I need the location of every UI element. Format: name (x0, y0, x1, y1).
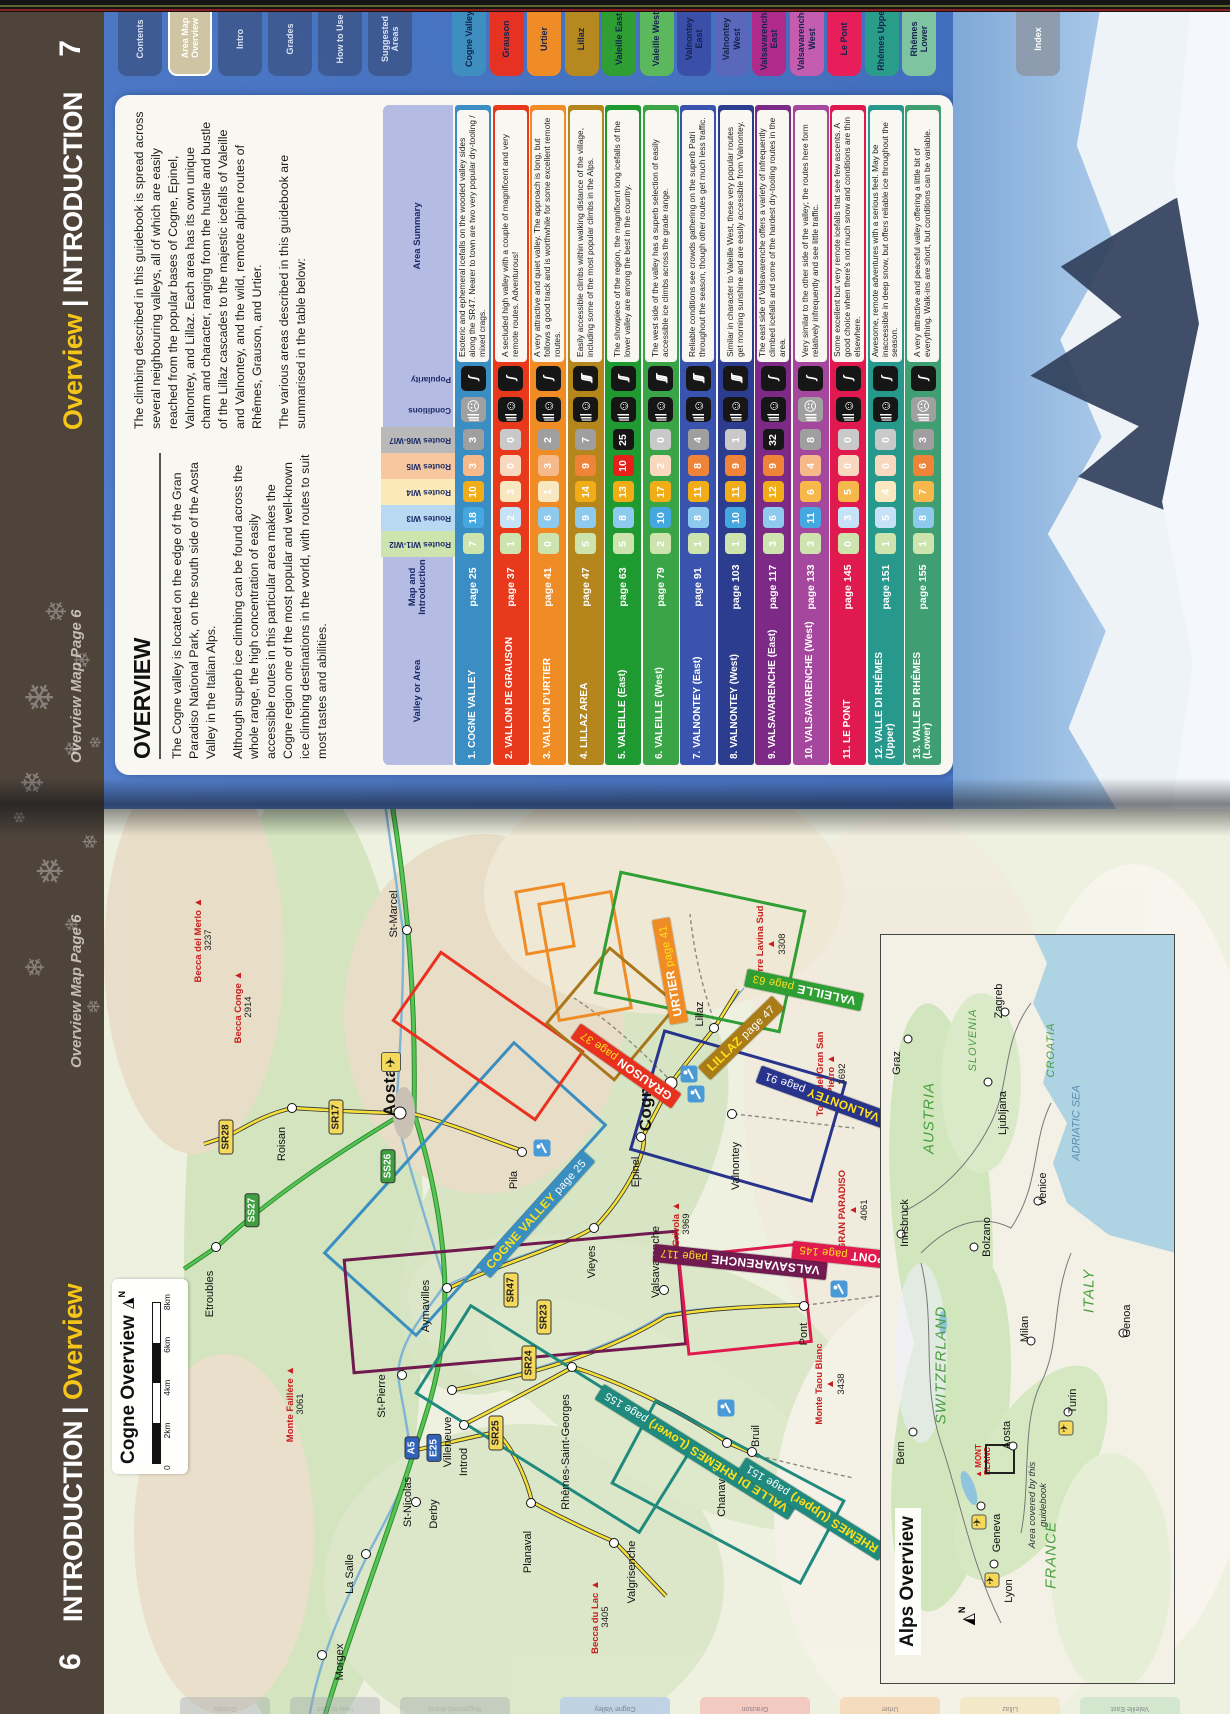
table-header-3: Routes WI3 (381, 505, 455, 531)
town-dot-la-salle (361, 1549, 371, 1559)
routes-count-wi5: 9 (725, 456, 746, 477)
routes-count-wi12: 1 (725, 534, 746, 555)
ice-axe-icon: ʃʃʃ (579, 376, 593, 382)
road-badge-sr23: SR23 (537, 1299, 552, 1334)
scale-tick-label: 2km (162, 1422, 172, 1438)
city-dot-graz (904, 1035, 913, 1044)
area-summary: Easily accessible climbs within walking … (570, 110, 602, 362)
town-dot-etroubles (211, 1242, 221, 1252)
popularity-icon: ʃʃʃ (573, 367, 598, 392)
icefall-icon (542, 414, 554, 421)
table-header-label: Map and Introduction (407, 559, 428, 614)
icefall-icon (655, 414, 667, 421)
city-label: Zagreb (993, 984, 1005, 1019)
routes-count-wi67: 4 (688, 430, 709, 451)
tab-area-valeille-east[interactable]: Valeille East (602, 4, 636, 76)
routes-count-wi5: 3 (463, 456, 484, 477)
town-dot-pont (799, 1301, 809, 1311)
ice-axe-icon: ʃ (466, 378, 480, 380)
table-row: 1. COGNE VALLEYpage 257181033☹ʃEsoteric … (455, 105, 491, 765)
snowflake-icon: ❄ (86, 736, 104, 749)
town-label: St-Pierre (376, 1374, 388, 1417)
town-dot-epinel (636, 1132, 646, 1142)
tab-contents[interactable]: Contents (118, 4, 162, 76)
table-row: 11. LE PONTpage 14503500☺ʃSome excellent… (830, 105, 866, 765)
tab-area-valsavarenche-west[interactable]: Valsavarenche West (790, 4, 824, 76)
happy-face-icon: ☺ (617, 399, 630, 412)
town-dot-rh-mes-saint-georges (567, 1362, 577, 1372)
city-label: Aosta (1001, 1421, 1013, 1449)
town-label: Rhêmes-Saint-Georges (560, 1394, 572, 1510)
area-page-ref: page 117 (767, 557, 779, 617)
edge-tab-urtier[interactable]: Urtier (840, 1697, 940, 1714)
north-arrow-icon: ◮N (118, 1291, 136, 1309)
conditions-icon: ☺ (648, 398, 673, 423)
page7-header-topic: Overview (58, 314, 88, 430)
area-summary: The east side of Valsavarenche offers a … (757, 110, 789, 362)
routes-count-wi67: 8 (800, 430, 821, 451)
routes-count-wi67: 0 (875, 430, 896, 451)
tab-area-rhêmes-upper[interactable]: Rhêmes Upper (865, 4, 899, 76)
page6-header-band: 6 INTRODUCTION | Overview Overview Map P… (0, 809, 104, 1714)
conditions-icon: ☺ (723, 398, 748, 423)
page7-header-title: Overview | INTRODUCTION (58, 92, 89, 430)
routes-count-wi3: 9 (575, 508, 596, 529)
map-title: Cogne Overview (118, 1315, 139, 1464)
happy-face-icon: ☺ (692, 399, 705, 412)
ice-axe-icon: ʃʃ (616, 377, 630, 381)
peak-triangle-icon: ▲ (825, 1379, 836, 1389)
tab-area-valeille-west[interactable]: Valeille West (640, 4, 674, 76)
routes-count-wi4: 11 (725, 482, 746, 503)
tab-area-valnontey-east[interactable]: Valnontey East (677, 4, 711, 76)
area-page-ref: page 63 (617, 557, 629, 617)
ice-axe-icon: ʃ (879, 378, 893, 380)
town-label: Derby (428, 1499, 440, 1528)
page-stack-edge (0, 0, 1230, 12)
routes-count-wi12: 3 (800, 534, 821, 555)
overview-heading: OVERVIEW (129, 453, 161, 759)
table-header-5: Routes WI5 (381, 453, 455, 479)
town-dot-chanavey (722, 1438, 732, 1448)
routes-count-wi5: 2 (650, 456, 671, 477)
tab-area-valnontey-west[interactable]: Valnontey West (715, 4, 749, 76)
town-dot-lillaz (709, 1023, 719, 1033)
routes-count-wi5: 3 (538, 456, 559, 477)
table-header-label: Routes WI1-WI2 (385, 540, 451, 549)
city-dot-bern (909, 1428, 918, 1437)
area-name: 1. COGNE VALLEY (468, 617, 479, 765)
table-header-4: Routes WI4 (381, 479, 455, 505)
tab-suggested-areas[interactable]: Suggested Areas (368, 4, 412, 76)
table-row: 6. VALEILLE (West)page 792101720☺ʃʃʃThe … (643, 105, 679, 765)
tab-how-to-use[interactable]: How to Use (318, 4, 362, 76)
area-page-ref: page 133 (805, 557, 817, 617)
table-header-6: Routes WI6-WI7 (381, 427, 455, 453)
town-label: Villeneuve (442, 1417, 454, 1468)
town-dot-derby (411, 1497, 421, 1507)
page-edge-line (0, 5, 1230, 7)
town-label: Epinel (630, 1157, 642, 1188)
area-page-ref: page 47 (580, 557, 592, 617)
road-badge-ss26: SS26 (381, 1149, 396, 1183)
edge-tab-label: Cogne Valley (594, 1705, 635, 1712)
routes-count-wi4: 14 (575, 482, 596, 503)
table-row: 7. VALNONTEY (East)page 91181184☺ʃʃʃReli… (680, 105, 716, 765)
area-name: 11. LE PONT (843, 617, 854, 765)
icefall-icon (692, 414, 704, 421)
table-header-8: Popularity (383, 365, 453, 393)
tab-area-urtier[interactable]: Urtier (527, 4, 561, 76)
snowflake-icon: ❄ (10, 811, 30, 824)
routes-count-wi3: 8 (613, 508, 634, 529)
book-spread: 6 INTRODUCTION | Overview Overview Map P… (0, 0, 1230, 1714)
table-header-0: Valley or Area (411, 617, 425, 765)
edge-tab-label: How to Use (317, 1705, 353, 1712)
table-header-row: Valley or AreaMap and IntroductionRoutes… (383, 105, 453, 765)
routes-count-wi3: 8 (913, 508, 934, 529)
routes-count-wi12: 7 (463, 534, 484, 555)
edge-tab-label: Grades (214, 1705, 237, 1712)
area-name: 9. VALSAVARENCHE (East) (768, 617, 779, 765)
snowflake-icon: ❄ (84, 999, 104, 1014)
peak-triangle-icon: ▲ (671, 1201, 682, 1211)
happy-face-icon: ☺ (579, 399, 592, 412)
routes-count-wi3: 18 (463, 508, 484, 529)
routes-count-wi4: 17 (650, 482, 671, 503)
conditions-icon: ☺ (761, 398, 786, 423)
snowflake-icon: ❄ (78, 833, 103, 850)
city-dot-ljubljana (984, 1078, 993, 1087)
town-label: Planaval (522, 1531, 534, 1573)
area-page-ref: page 91 (692, 557, 704, 617)
icefall-icon (917, 414, 929, 421)
area-summary: Awesome, remote adventures with a seriou… (870, 110, 902, 362)
ice-axe-icon: ʃʃʃ (691, 376, 705, 382)
tab-area-rhêmes-lower[interactable]: Rhêmes Lower (902, 4, 936, 76)
popularity-icon: ʃ (836, 367, 861, 392)
town-label: Pila (508, 1171, 520, 1189)
ski-icon (831, 1281, 848, 1298)
icefall-icon (730, 414, 742, 421)
table-header-7: Conditions (383, 393, 453, 427)
airport-icon: ✈ (972, 1515, 987, 1530)
page7-watermark: Overview Map Page 6 (68, 610, 85, 763)
popularity-icon: ʃ (498, 367, 523, 392)
town-dot-valgrisenche (609, 1538, 619, 1548)
page6-header-title: INTRODUCTION | Overview (58, 1284, 89, 1622)
conditions-icon: ☺ (836, 398, 861, 423)
sad-face-icon: ☹ (804, 399, 817, 413)
town-label: Valnontey (730, 1142, 742, 1190)
area-summary: Some excellent but very remote icefalls … (832, 110, 864, 362)
area-name: 8. VALNONTEY (West) (730, 617, 741, 765)
routes-count-wi4: 1 (538, 482, 559, 503)
city-label: Bern (895, 1441, 907, 1464)
table-row: 8. VALNONTEY (West)page 1031101191☺ʃʃʃSi… (718, 105, 754, 765)
road-badge-sr24: SR24 (522, 1345, 537, 1380)
peak-label-becca-du-lac: Becca du Lac ▲3405 (590, 1574, 612, 1660)
page7-header-section: INTRODUCTION (58, 92, 88, 293)
conditions-icon: ☺ (573, 398, 598, 423)
conditions-icon: ☺ (873, 398, 898, 423)
happy-face-icon: ☺ (654, 399, 667, 412)
airport-icon: ✈ (985, 1573, 1000, 1588)
routes-count-wi3: 6 (763, 508, 784, 529)
happy-face-icon: ☺ (767, 399, 780, 412)
ice-axe-icon: ʃʃʃ (729, 376, 743, 382)
popularity-icon: ʃ (911, 367, 936, 392)
ice-axe-icon: ʃ (916, 378, 930, 380)
page-edge-line (0, 9, 1230, 11)
popularity-icon: ʃ (761, 367, 786, 392)
edge-tab-label: Lillaz (1002, 1705, 1018, 1712)
ski-icon (718, 1400, 735, 1417)
routes-count-wi5: 0 (500, 456, 521, 477)
peak-triangle-icon: ▲ (848, 1205, 859, 1215)
ski-icon (681, 1066, 698, 1083)
road-badge-sr47: SR47 (504, 1272, 519, 1307)
alps-overview-inset: Alps Overview ◭N ADRIATIC SEA ▲ MONT BLA… (880, 934, 1175, 1684)
town-dot-planaval (526, 1498, 536, 1508)
country-label-france: FRANCE (1043, 1521, 1060, 1589)
town-label: Introd (458, 1448, 470, 1476)
conditions-icon: ☹ (461, 398, 486, 423)
conditions-icon: ☺ (536, 398, 561, 423)
tab-area-le-pont[interactable]: Le Pont (827, 4, 861, 76)
edge-tab-lillaz[interactable]: Lillaz (960, 1697, 1060, 1714)
inset-title: Alps Overview (895, 1508, 921, 1655)
edge-tab-grades[interactable]: Grades (180, 1697, 270, 1714)
country-label-switzerland: SWITZERLAND (933, 1306, 950, 1425)
happy-face-icon: ☺ (542, 399, 555, 412)
routes-count-wi3: 3 (838, 508, 859, 529)
scale-tick-label: 0 (162, 1465, 172, 1470)
tab-area-cogne-valley[interactable]: Cogne Valley (452, 4, 486, 76)
peak-triangle-icon: ▲ (285, 1366, 296, 1376)
happy-face-icon: ☺ (842, 399, 855, 412)
town-dot-roisan (287, 1103, 297, 1113)
city-label: Genoa (1121, 1304, 1133, 1337)
edge-tab-suggested-areas[interactable]: Suggested Areas (400, 1697, 510, 1714)
table-row: 4. LILLAZ AREApage 47591497☺ʃʃʃEasily ac… (568, 105, 604, 765)
city-label: Geneva (991, 1514, 1003, 1553)
routes-count-wi5: 10 (613, 456, 634, 477)
table-header-label: Conditions (385, 406, 451, 415)
country-label-italy: ITALY (1081, 1269, 1098, 1313)
ice-axe-icon: ʃ (541, 378, 555, 380)
ice-axe-icon: ʃ (804, 378, 818, 380)
inset-sea-label: ADRIATIC SEA (1070, 1085, 1083, 1161)
area-summary: A very attractive and quiet valley. The … (532, 110, 564, 362)
peak-triangle-icon: ▲ (193, 898, 204, 908)
area-page-ref: page 151 (880, 557, 892, 617)
peak-triangle-icon: ▲ (766, 939, 777, 949)
town-label: Valgrisenche (626, 1541, 638, 1604)
peak-triangle-icon: ▲ (826, 1054, 837, 1064)
table-header-label: Popularity (385, 375, 451, 384)
popularity-icon: ʃ (798, 367, 823, 392)
map-scale-bar (152, 1302, 161, 1464)
tab-area-map-overview[interactable]: Area Map Overview (168, 4, 212, 76)
routes-count-wi67: 3 (463, 430, 484, 451)
cogne-overview-map: St-MarcelAostaRoisanEtroublesPilaAymavil… (104, 809, 1230, 1714)
edge-tab-how-to-use[interactable]: How to Use (290, 1697, 380, 1714)
town-dot-vieyes (589, 1223, 599, 1233)
city-label: Innsbruck (899, 1199, 911, 1247)
routes-count-wi12: 1 (688, 534, 709, 555)
tab-intro[interactable]: Intro (218, 4, 262, 76)
happy-face-icon: ☺ (729, 399, 742, 412)
page7-header-band: Overview Map Page 6 Overview | INTRODUCT… (0, 0, 104, 809)
peak-label-monte-taou-blanc: Monte Taou Blanc ▲3438 (815, 1341, 847, 1427)
icefall-icon (805, 414, 817, 421)
road-badge-e25: E25 (427, 1434, 442, 1462)
edge-tab-valeille-east[interactable]: Valeille East (1080, 1697, 1180, 1714)
tab-area-grauson[interactable]: Grauson (490, 4, 524, 76)
popularity-icon: ʃʃʃ (648, 367, 673, 392)
area-page-ref: page 37 (505, 557, 517, 617)
table-row: 10. VALSAVARENCHE (West)page 133311648☹ʃ… (793, 105, 829, 765)
snowflake-icon: ❄ (16, 770, 51, 795)
peak-triangle-icon: ▲ (233, 971, 244, 981)
page6-header-section: INTRODUCTION (58, 1421, 88, 1622)
routes-count-wi67: 32 (763, 430, 784, 451)
icefall-icon (580, 414, 592, 421)
scale-tick-label: 8km (162, 1294, 172, 1310)
tab-grades[interactable]: Grades (268, 4, 312, 76)
overview-paragraph-1: The Cogne valley is located on the edge … (169, 453, 220, 759)
routes-count-wi4: 3 (500, 482, 521, 503)
town-dot-bruil (747, 1447, 757, 1457)
road-badge-sr28: SR28 (219, 1119, 234, 1154)
town-dot-pila (517, 1147, 527, 1157)
town-dot-aymavilles (442, 1283, 452, 1293)
city-label: Graz (891, 1051, 903, 1075)
town-label: Morgex (334, 1644, 346, 1681)
icefall-icon (505, 414, 517, 421)
table-row: 2. VALLON DE GRAUSONpage 3712300☺ʃA secl… (493, 105, 529, 765)
map-scale-labels: 02km4km6km8km (162, 1294, 172, 1470)
area-summary: Similar in character to Valeille West, t… (720, 110, 752, 362)
inset-north-arrow-icon: ◭N (958, 1607, 978, 1626)
map-title-box: Cogne Overview ◮N 02km4km6km8km (112, 1279, 188, 1474)
table-header-label: Routes WI4 (385, 488, 451, 497)
tab-index[interactable]: Index (1016, 4, 1060, 76)
area-name: 6. VALEILLE (West) (655, 617, 666, 765)
routes-count-wi3: 11 (800, 508, 821, 529)
area-name: 3. VALLON D'URTIER (543, 617, 554, 765)
routes-count-wi3: 10 (650, 508, 671, 529)
sad-face-icon: ☹ (917, 399, 930, 413)
road-badge-sr17: SR17 (329, 1099, 344, 1134)
area-summary: A secluded high valley with a couple of … (495, 110, 527, 362)
town-label: Aymavilles (420, 1280, 432, 1332)
snowflake-icon: ❄ (30, 856, 72, 886)
road-badge-a5: A5 (405, 1437, 420, 1460)
routes-count-wi12: 1 (500, 534, 521, 555)
city-label: Turin (1067, 1389, 1079, 1414)
routes-count-wi4: 10 (463, 482, 484, 503)
ice-axe-icon: ʃ (766, 378, 780, 380)
ski-icon (688, 1086, 705, 1103)
town-label: Etroubles (204, 1271, 216, 1317)
page7-number: 7 (54, 40, 88, 57)
icefall-icon (842, 414, 854, 421)
table-row: 9. VALSAVARENCHE (East)page 1173612932☺ʃ… (755, 105, 791, 765)
table-row: 3. VALLON D'URTIERpage 4106132☺ʃA very a… (530, 105, 566, 765)
routes-count-wi67: 1 (725, 430, 746, 451)
snowflake-icon: ❄ (20, 956, 51, 978)
area-name: 12. VALLE DI RHÊMES (Upper) (875, 617, 896, 765)
page-7-overview-page: Overview Map Page 6 Overview | INTRODUCT… (0, 0, 1230, 809)
snowflake-icon: ❄ (18, 681, 63, 713)
town-dot-st-marcel (402, 925, 412, 935)
page6-number: 6 (54, 1653, 88, 1670)
airport-icon: ✈ (1059, 1421, 1074, 1436)
routes-count-wi5: 9 (763, 456, 784, 477)
table-header-label: Routes WI6-WI7 (385, 436, 451, 445)
area-page-ref: page 103 (730, 557, 742, 617)
popularity-icon: ʃ (536, 367, 561, 392)
road-badge-ss27: SS27 (245, 1193, 260, 1227)
happy-face-icon: ☺ (879, 399, 892, 412)
area-name: 5. VALEILLE (East) (618, 617, 629, 765)
town-label: Lillaz (694, 1001, 706, 1026)
area-name: 2. VALLON DE GRAUSON (505, 617, 516, 765)
area-summary: Reliable conditions see crowds gathering… (682, 110, 714, 362)
popularity-icon: ʃʃʃ (723, 367, 748, 392)
routes-count-wi67: 0 (500, 430, 521, 451)
routes-count-wi12: 1 (913, 534, 934, 555)
town-dot-introd (459, 1420, 469, 1430)
city-label: Bolzano (981, 1217, 993, 1257)
area-summary-table: Valley or AreaMap and IntroductionRoutes… (383, 105, 943, 765)
tab-area-lillaz[interactable]: Lillaz (565, 4, 599, 76)
page6-header-separator: | (58, 1400, 88, 1421)
city-dot-bolzano (970, 1243, 979, 1252)
city-label: Milan (1019, 1316, 1031, 1342)
city-dot-geneva (977, 1502, 986, 1511)
conditions-icon: ☺ (611, 398, 636, 423)
area-name: 10. VALSAVARENCHE (West) (805, 617, 816, 765)
tab-area-valsavarenche-east[interactable]: Valsavarenche East (752, 4, 786, 76)
mountain-photo (953, 0, 1230, 809)
table-row: 12. VALLE DI RHÊMES (Upper)page 15115400… (868, 105, 904, 765)
sad-face-icon: ☹ (467, 399, 480, 413)
routes-count-wi3: 5 (875, 508, 896, 529)
town-dot-st-pierre (397, 1370, 407, 1380)
town-label: St-Marcel (388, 890, 400, 937)
table-header-label: Valley or Area (412, 660, 423, 723)
area-page-ref: page 155 (917, 557, 929, 617)
edge-tab-grauson[interactable]: Grauson (700, 1697, 810, 1714)
table-header-label: Routes WI5 (385, 462, 451, 471)
icefall-icon (767, 414, 779, 421)
peak-label-becca-conge: Becca Conge ▲2914 (233, 964, 255, 1050)
routes-count-wi5: 0 (838, 456, 859, 477)
conditions-icon: ☹ (911, 398, 936, 423)
routes-count-wi3: 6 (538, 508, 559, 529)
icefall-icon (617, 414, 629, 421)
table-header-label: Area Summary (412, 202, 423, 269)
area-name: 13. VALLE DI RHÊMES (Lower) (913, 617, 934, 765)
popularity-icon: ʃ (461, 367, 486, 392)
overview-content-box: OVERVIEW The Cogne valley is located on … (115, 95, 953, 775)
intro-column: The climbing described in this guidebook… (131, 111, 320, 429)
edge-tab-cogne-valley[interactable]: Cogne Valley (560, 1697, 670, 1714)
routes-count-wi4: 4 (875, 482, 896, 503)
